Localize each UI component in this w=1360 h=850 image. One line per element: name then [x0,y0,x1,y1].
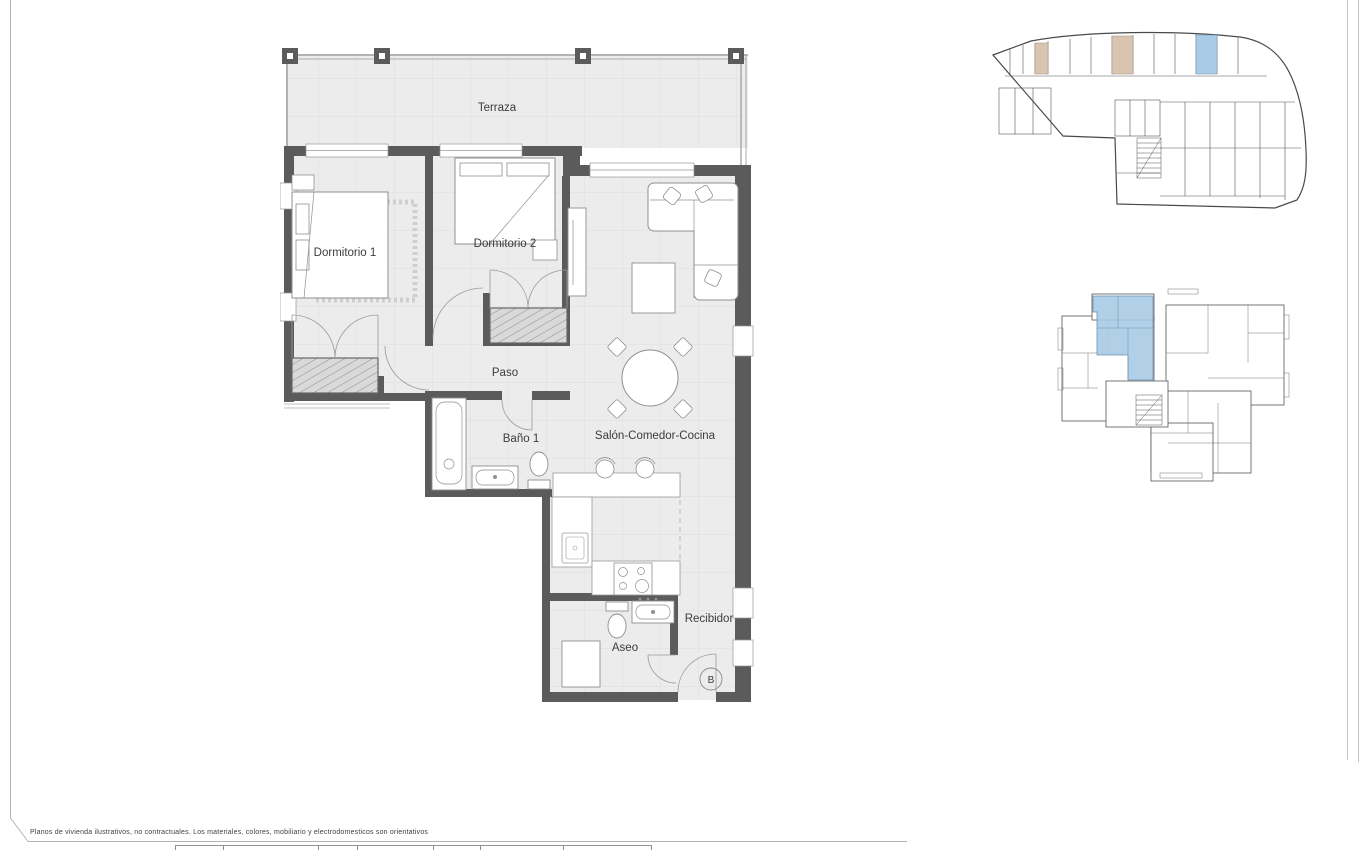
key-plan-outline [1062,294,1284,481]
room-label-dormitorio1: Dormitorio 1 [314,247,377,259]
table-divider [563,846,564,850]
table-divider [480,846,481,850]
terrace-floor [286,56,748,148]
room-label-dormitorio2: Dormitorio 2 [474,238,537,250]
disclaimer-text: Planos de vivienda ilustrativos, no cont… [30,829,428,836]
table-divider [357,846,358,850]
parking-highlight-blue [1196,35,1217,74]
room-label-bano1: Baño 1 [503,433,539,445]
bathroom-sink [472,466,518,489]
bathtub [432,398,466,490]
tv-unit [568,208,586,296]
unit-marker-label: B [708,675,715,686]
table-divider [433,846,434,850]
room-label-paso: Paso [492,367,518,379]
table-divider [318,846,319,850]
floor-key-plan [1048,283,1303,498]
room-label-salon: Salón-Comedor-Cocina [595,430,716,442]
stove [614,563,652,595]
table-divider [175,846,176,850]
main-floor-plan: Terraza Dormitorio 1 Dormitorio 2 Paso B… [280,40,760,710]
storage-highlight-tan-large [1112,36,1133,74]
toilet-bano1 [528,452,550,489]
room-label-terraza: Terraza [478,102,517,114]
table-divider [223,846,224,850]
coffee-table [632,263,675,313]
toilet-aseo [606,602,628,638]
room-label-aseo: Aseo [612,642,638,654]
garage-key-plan [985,28,1320,218]
table-divider [651,846,652,850]
room-label-recibidor: Recibidor [685,613,734,625]
shower-tray [562,641,600,687]
title-block-table [175,845,652,850]
storage-highlight-tan-small [1035,43,1048,74]
aseo-sink [632,598,674,623]
plan-sheet: Terraza Dormitorio 1 Dormitorio 2 Paso B… [0,0,1360,850]
